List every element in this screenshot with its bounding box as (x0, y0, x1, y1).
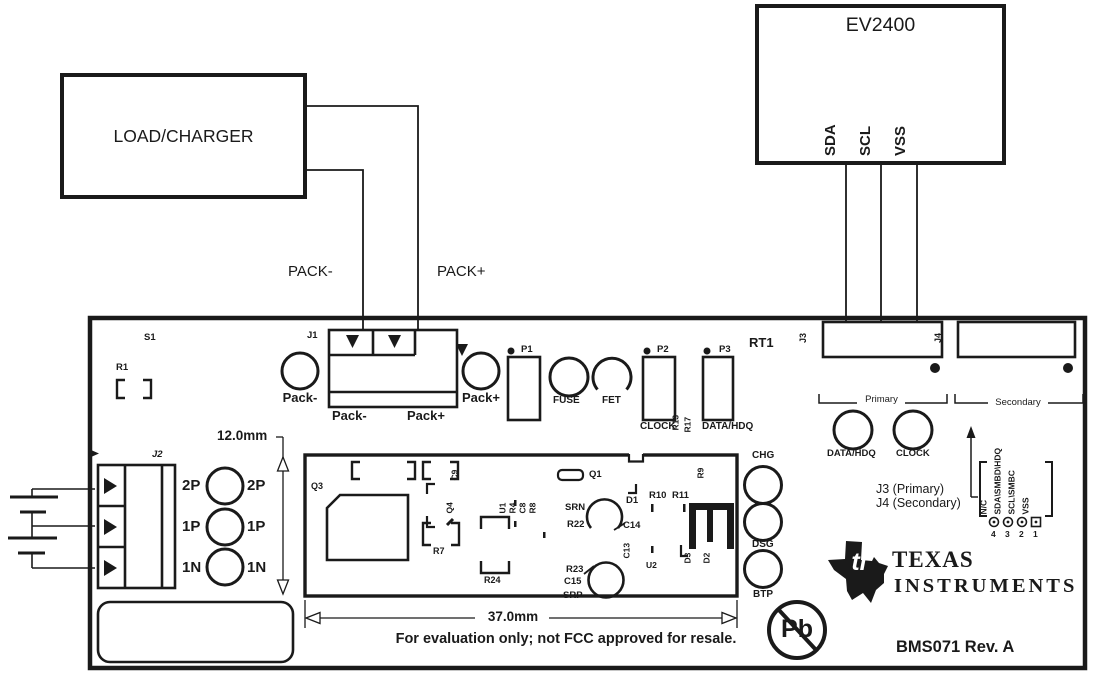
ref-r4: R4 (509, 503, 518, 514)
pack-minus-tp-label: Pack- (279, 391, 321, 404)
ref-q3: Q3 (311, 482, 323, 491)
primary-group-label: Primary (858, 395, 905, 405)
pin-label-scl: SCL\SMBC (1008, 470, 1017, 514)
row-2p-right: 2P (247, 478, 265, 493)
row-1n-left: 1N (182, 560, 201, 575)
ref-c15: C15 (564, 577, 581, 587)
pin-number-3: 3 (1005, 530, 1010, 539)
row-1p-right: 1P (247, 519, 265, 534)
dim-height (276, 437, 289, 594)
eval-board-connection-diagram: EV2400 SDA SCL VSS LOAD/CHARGER PACK- PA… (0, 0, 1100, 679)
ev2400-pin-sda: SDA (823, 124, 838, 156)
disclaimer-text: For evaluation only; not FCC approved fo… (373, 632, 759, 647)
ref-srp: SRP (563, 591, 583, 601)
ti-name-line2: INSTRUMENTS (894, 576, 1077, 597)
clock-testpoint (894, 411, 932, 449)
fuse-label: FUSE (553, 396, 580, 406)
gauge-circuit-box (305, 455, 737, 596)
ref-d2: D2 (703, 553, 712, 564)
dsg-testpoint (745, 504, 782, 541)
pack-plus-testpoint (463, 353, 499, 389)
ref-p1: P1 (521, 345, 533, 355)
ref-j1: J1 (307, 331, 318, 341)
pb-label: Pb (779, 617, 815, 642)
ref-q4: Q4 (446, 502, 455, 513)
pack-plus-wire-label: PACK+ (437, 264, 486, 279)
ref-u2: U2 (646, 561, 657, 570)
ref-r8: R8 (529, 503, 538, 514)
j1-connector (329, 330, 457, 407)
j1-pack-minus-label: Pack- (332, 409, 367, 422)
load-charger-title: LOAD/CHARGER (62, 128, 305, 146)
fuse-circle (550, 358, 588, 396)
ref-d3: D3 (684, 553, 693, 564)
battery-symbol (8, 489, 95, 568)
r1-pads (117, 380, 151, 398)
ref-j4: J4 (934, 333, 943, 343)
secondary-group-label: Secondary (988, 398, 1048, 408)
ref-s1: S1 (144, 333, 156, 343)
ref-c13: C13 (623, 543, 632, 559)
pin-number-1: 1 (1033, 530, 1038, 539)
ref-r23: R23 (566, 565, 583, 575)
ev2400-title: EV2400 (757, 16, 1004, 36)
j2-connector (91, 450, 175, 588)
ref-c14: C14 (623, 521, 640, 531)
fet-label: FET (602, 396, 621, 406)
pack-plus-tp-label: Pack+ (459, 391, 503, 404)
dsg-label: DSG (752, 540, 774, 550)
pin-label-vss: VSS (1022, 497, 1031, 514)
pin-label-sda: SDA\SMBD\HDQ (994, 448, 1003, 515)
pin-marker-icon (388, 335, 401, 348)
testpoint-2p (207, 468, 243, 504)
ti-mark: ti (846, 550, 872, 575)
btp-testpoint (745, 551, 782, 588)
ref-q1: Q1 (589, 470, 602, 480)
ref-r10: R10 (649, 491, 666, 501)
ref-c9: C9 (451, 470, 460, 481)
ref-srn: SRN (565, 503, 585, 513)
pin-number-4: 4 (991, 530, 996, 539)
btp-label: BTP (753, 590, 773, 600)
ref-c8: C8 (519, 503, 528, 514)
ref-r13: R13 (672, 415, 681, 431)
testpoint-1p (207, 509, 243, 545)
ev2400-pin-scl: SCL (858, 126, 873, 156)
inner-components (327, 462, 734, 598)
fet-arc (593, 358, 631, 389)
j3-j4-connectors (823, 322, 1075, 373)
data-hdq-testpoint (834, 411, 872, 449)
pack-wires (305, 106, 418, 330)
ref-u1: U1 (499, 503, 508, 514)
ref-r9: R9 (697, 468, 706, 479)
pin1-arrow-icon (91, 450, 99, 457)
pin-number-2: 2 (1019, 530, 1024, 539)
pin-label-nc: N/C (980, 500, 989, 515)
p3-data-hdq-label: DATA/HDQ (702, 422, 753, 432)
ref-d1: D1 (626, 496, 638, 506)
pack-minus-wire-label: PACK- (288, 264, 333, 279)
ref-p2: P2 (657, 345, 669, 355)
dim-height-label: 12.0mm (217, 429, 267, 443)
chg-testpoint (745, 467, 782, 504)
label-area (98, 602, 293, 662)
board-rev-label: BMS071 Rev. A (896, 639, 1014, 656)
testpoint-1n (207, 549, 243, 585)
ev2400-pin-vss: VSS (893, 126, 908, 156)
ref-r11: R11 (672, 491, 689, 501)
j1-pack-plus-label: Pack+ (407, 409, 445, 422)
ref-r1: R1 (116, 363, 128, 373)
pin-marker-icon (104, 560, 117, 576)
row-1p-left: 1P (182, 519, 200, 534)
pin-marker-icon (104, 478, 117, 494)
row-2p-left: 2P (182, 478, 200, 493)
ref-j3: J3 (799, 333, 808, 343)
ref-rt1: RT1 (749, 336, 774, 349)
ti-name-line1: TEXAS (892, 548, 974, 571)
j3-primary-label: J3 (Primary) (876, 483, 944, 496)
row-1n-right: 1N (247, 560, 266, 575)
i2c-wires (846, 163, 917, 322)
ref-r17: R17 (684, 417, 693, 433)
pin-marker-icon (104, 519, 117, 535)
ref-r7: R7 (433, 547, 445, 556)
ref-j2: J2 (152, 450, 163, 460)
pin-marker-icon (346, 335, 359, 348)
j4-secondary-label: J4 (Secondary) (876, 497, 961, 510)
chg-label: CHG (752, 451, 774, 461)
ref-p3: P3 (719, 345, 731, 355)
dim-width-label: 37.0mm (477, 610, 549, 624)
p1-p2-p3 (508, 348, 734, 421)
primary-clock-label: CLOCK (896, 449, 930, 459)
ref-r24: R24 (484, 576, 501, 585)
pack-minus-testpoint (282, 353, 318, 389)
ref-r22: R22 (567, 520, 584, 530)
primary-data-hdq-label: DATA/HDQ (827, 449, 876, 459)
up-arrow-icon (967, 426, 976, 438)
